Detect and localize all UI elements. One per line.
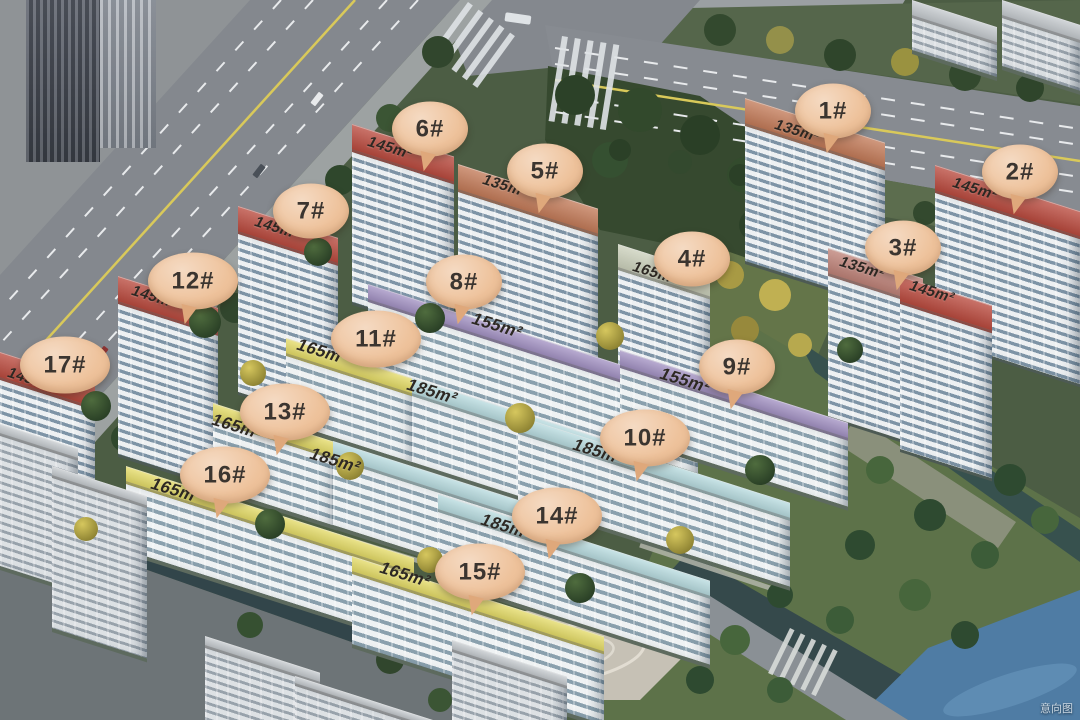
balloon-2: 2# [982, 145, 1058, 200]
balloon-3: 3# [865, 221, 941, 276]
offsite-tower [52, 466, 147, 662]
balloon-6: 6# [392, 102, 468, 157]
tree [240, 360, 266, 386]
building-3-east-facade [900, 304, 992, 481]
balloon-11: 11# [331, 311, 421, 368]
building-3-east [900, 276, 992, 481]
balloon-12: 12# [148, 253, 238, 310]
tree [255, 509, 285, 539]
balloon-15-text: 15# [458, 558, 501, 586]
balloon-5: 5# [507, 144, 583, 199]
balloon-7: 7# [273, 184, 349, 239]
balloon-10-text: 10# [623, 424, 666, 452]
tree [415, 303, 445, 333]
balloon-1: 1# [795, 84, 871, 139]
balloon-1-text: 1# [819, 97, 848, 125]
watermark-text: 意向图 [1040, 700, 1073, 716]
tree [74, 517, 98, 541]
tree [565, 573, 595, 603]
balloon-9: 9# [699, 340, 775, 395]
balloon-9-text: 9# [723, 353, 752, 381]
tree [81, 391, 111, 421]
balloon-11-text: 11# [355, 325, 397, 353]
balloon-13: 13# [240, 384, 330, 441]
balloon-17: 17# [20, 337, 110, 394]
balloon-14: 14# [512, 488, 602, 545]
balloon-10: 10# [600, 410, 690, 467]
tree [596, 322, 624, 350]
balloon-8-text: 8# [450, 268, 479, 296]
balloon-7-text: 7# [297, 197, 326, 225]
balloon-16: 16# [180, 447, 270, 504]
balloon-16-text: 16# [203, 461, 246, 489]
aerial-masterplan-rendering: 145m² 135m² 135m² 145m² 145m² 165m² 135m… [0, 0, 1080, 720]
tree [666, 526, 694, 554]
office-tower [26, 0, 100, 162]
balloon-14-text: 14# [535, 502, 578, 530]
tree [505, 403, 535, 433]
balloon-17-text: 17# [43, 351, 86, 379]
tree [304, 238, 332, 266]
balloon-2-text: 2# [1006, 158, 1035, 186]
balloon-12-text: 12# [171, 267, 214, 295]
balloon-4-text: 4# [678, 245, 707, 273]
offsite-facade [52, 478, 147, 662]
balloon-6-text: 6# [416, 115, 445, 143]
balloon-13-text: 13# [263, 398, 306, 426]
tree [837, 337, 863, 363]
office-tower [100, 0, 156, 148]
tree [745, 455, 775, 485]
balloon-8: 8# [426, 255, 502, 310]
balloon-15: 15# [435, 544, 525, 601]
balloon-3-text: 3# [889, 234, 918, 262]
balloon-4: 4# [654, 232, 730, 287]
balloon-5-text: 5# [531, 157, 560, 185]
